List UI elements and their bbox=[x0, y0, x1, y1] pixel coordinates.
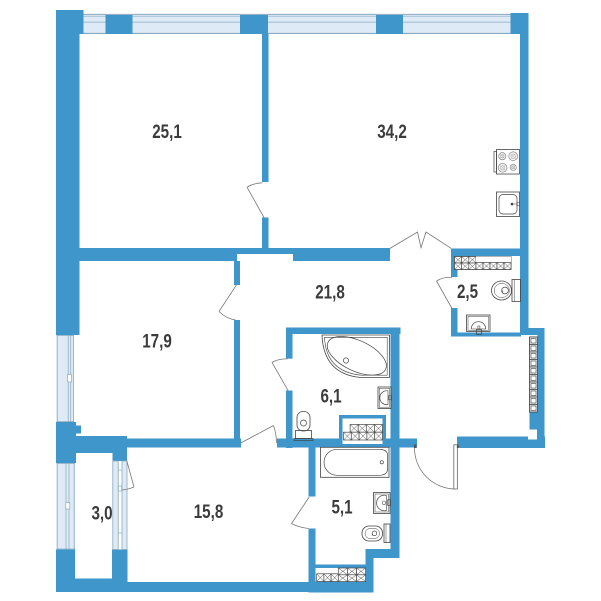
svg-text:5,1: 5,1 bbox=[331, 496, 352, 518]
svg-text:21,8: 21,8 bbox=[315, 281, 345, 303]
svg-text:3,0: 3,0 bbox=[91, 502, 112, 524]
svg-text:15,8: 15,8 bbox=[194, 500, 224, 522]
svg-text:6,1: 6,1 bbox=[320, 385, 341, 407]
svg-text:2,5: 2,5 bbox=[457, 280, 478, 302]
svg-text:25,1: 25,1 bbox=[152, 120, 182, 142]
svg-text:34,2: 34,2 bbox=[377, 120, 407, 142]
svg-text:17,9: 17,9 bbox=[142, 330, 172, 352]
